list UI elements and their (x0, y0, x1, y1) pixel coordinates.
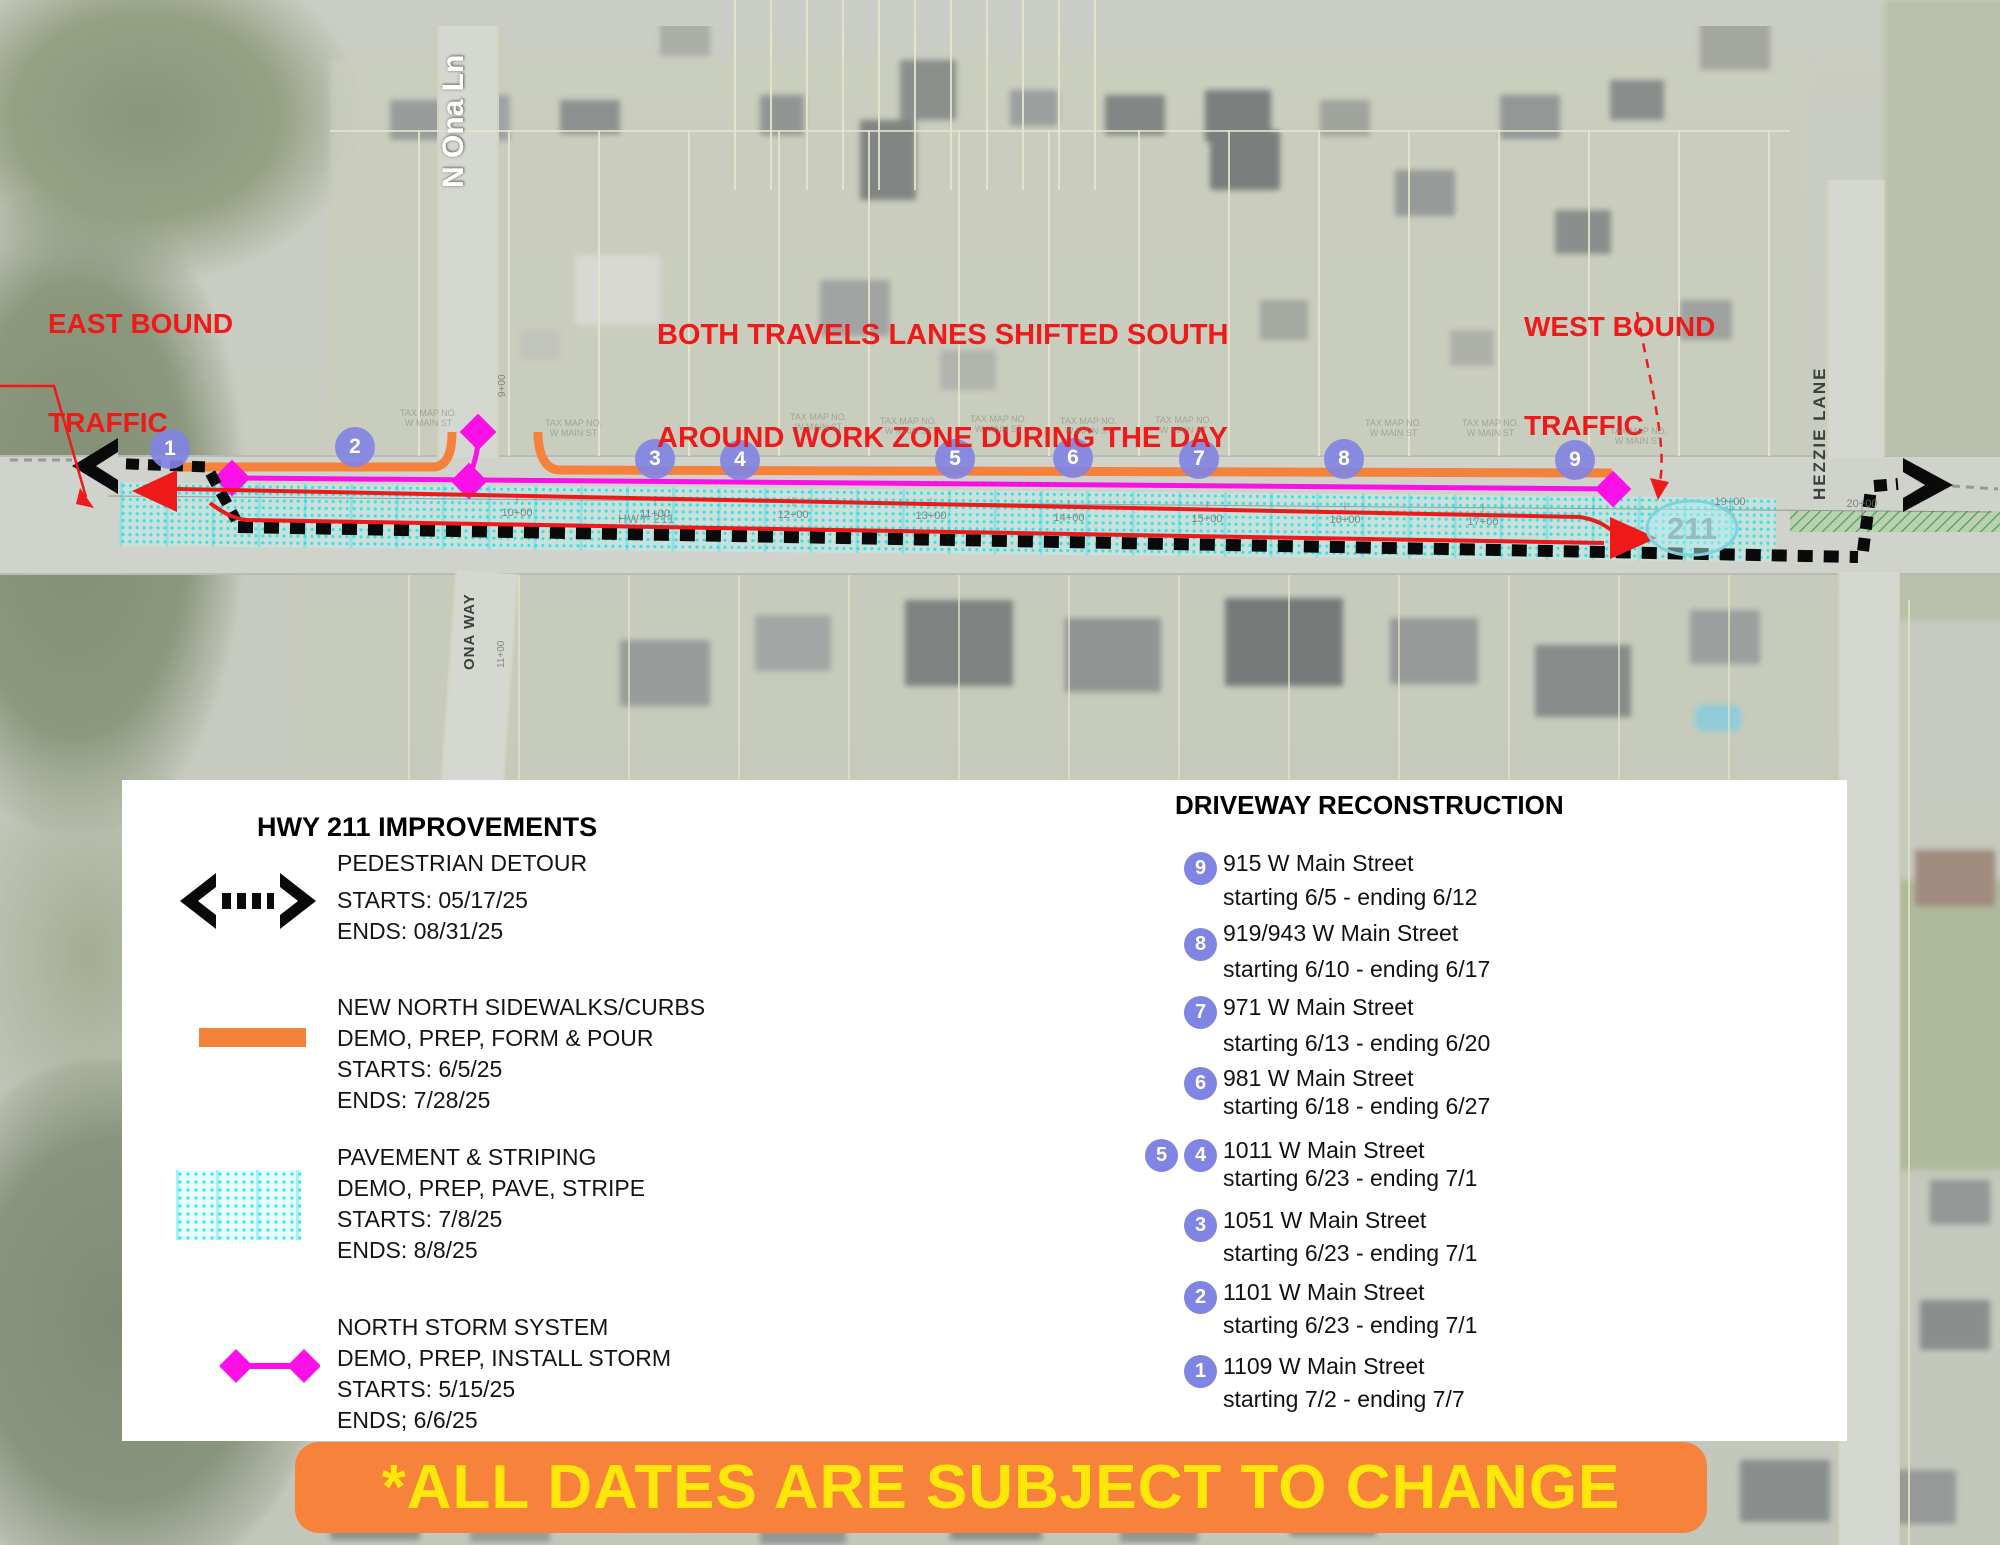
svg-text:19+00: 19+00 (1715, 496, 1746, 508)
pedestrian-detour-east-arrow-icon (1903, 458, 1953, 512)
driveway-badge-2: 2 (1184, 1281, 1217, 1314)
svg-text:20+00: 20+00 (1847, 498, 1878, 510)
tax-map-label: TAX MAP NO.W MAIN ST (400, 408, 457, 428)
legend-item-storm: NORTH STORM SYSTEM DEMO, PREP, INSTALL S… (337, 1312, 671, 1436)
svg-text:10+00: 10+00 (502, 507, 533, 519)
svg-text:16+00: 16+00 (1330, 514, 1361, 526)
tax-map-label: TAX MAP NO.W MAIN ST (545, 418, 602, 438)
storm-legend-icon (220, 1344, 320, 1388)
driveway-dates: starting 6/13 - ending 6/20 (1223, 1030, 1490, 1057)
street-label-hezzie-lane: HEZZIE LANE (1810, 367, 1830, 500)
driveway-address: 981 W Main Street (1223, 1065, 1413, 1092)
driveway-address: 1011 W Main Street (1223, 1137, 1425, 1164)
driveway-address: 919/943 W Main Street (1223, 920, 1458, 947)
dates-disclaimer-banner: *ALL DATES ARE SUBJECT TO CHANGE (295, 1442, 1707, 1533)
driveway-dates: starting 6/5 - ending 6/12 (1223, 884, 1477, 911)
street-label-hwy-211: HWY 211 (618, 512, 675, 526)
side-station-11-00: 11+00 (496, 641, 507, 668)
west-bound-traffic-label: WEST BOUND TRAFFIC (1524, 244, 1715, 508)
driveway-address: 1109 W Main Street (1223, 1353, 1425, 1380)
tax-map-label: TAX MAP NO.W MAIN ST (1462, 418, 1519, 438)
legend-item-pavement: PAVEMENT & STRIPING DEMO, PREP, PAVE, ST… (337, 1142, 645, 1266)
driveway-badge-3: 3 (1184, 1209, 1217, 1242)
tax-map-label: TAX MAP NO.W MAIN ST (1155, 415, 1212, 435)
driveway-dates: starting 7/2 - ending 7/7 (1223, 1386, 1465, 1413)
driveway-dates: starting 6/23 - ending 7/1 (1223, 1312, 1477, 1339)
tax-map-label: TAX MAP NO.W MAIN ST (880, 416, 937, 436)
map-marker-2: 2 (335, 427, 375, 467)
svg-text:17+00: 17+00 (1468, 516, 1499, 528)
sidewalk-legend-swatch (199, 1028, 306, 1047)
side-station-9-00: 9+00 (497, 374, 508, 397)
driveway-badge-6: 6 (1184, 1067, 1217, 1100)
driveway-badge-8: 8 (1184, 928, 1217, 961)
tax-map-label: TAX MAP NO.W MAIN ST (790, 412, 847, 432)
driveway-address: 1101 W Main Street (1223, 1279, 1425, 1306)
driveway-dates: starting 6/10 - ending 6/17 (1223, 956, 1490, 983)
east-bound-traffic-label: EAST BOUND TRAFFIC (48, 241, 233, 505)
tax-map-label: TAX MAP NO.W MAIN ST (1365, 418, 1422, 438)
driveway-badge-5: 5 (1145, 1139, 1178, 1172)
driveway-title: DRIVEWAY RECONSTRUCTION (1175, 790, 1564, 821)
legend-item-pedestrian-detour: PEDESTRIAN DETOUR STARTS: 05/17/25 ENDS:… (337, 848, 587, 947)
driveway-badge-9: 9 (1184, 852, 1217, 885)
pedestrian-detour-legend-icon (178, 872, 318, 930)
flyer-root: 211 10+00 11+00 12+00 13+00 14+00 15+00 … (0, 0, 2000, 1545)
driveway-address: 971 W Main Street (1223, 994, 1413, 1021)
legend-item-sidewalks: NEW NORTH SIDEWALKS/CURBS DEMO, PREP, FO… (337, 992, 705, 1116)
map-marker-8: 8 (1324, 439, 1364, 479)
street-label-ona-way: ONA WAY (461, 593, 478, 670)
driveway-dates: starting 6/23 - ending 7/1 (1223, 1165, 1477, 1192)
dates-disclaimer-text: *ALL DATES ARE SUBJECT TO CHANGE (382, 1452, 1621, 1523)
driveway-badge-1: 1 (1184, 1355, 1217, 1388)
driveway-badge-7: 7 (1184, 996, 1217, 1029)
driveway-dates: starting 6/23 - ending 7/1 (1223, 1240, 1477, 1267)
driveway-address: 915 W Main Street (1223, 850, 1413, 877)
tax-map-label: TAX MAP NO.W MAIN ST (970, 414, 1027, 434)
tax-map-label: TAX MAP NO.W MAIN ST (1610, 426, 1667, 446)
driveway-address: 1051 W Main Street (1223, 1207, 1426, 1234)
pavement-legend-swatch (176, 1170, 301, 1240)
svg-text:211: 211 (1667, 511, 1717, 546)
route-211-bubble: 211 (1647, 501, 1737, 555)
driveway-badge-4: 4 (1184, 1139, 1217, 1172)
legend-title: HWY 211 IMPROVEMENTS (257, 812, 597, 843)
street-label-n-ona-ln: N Ona Ln (437, 55, 471, 188)
grass-median (1790, 511, 2000, 532)
lane-shift-notice: BOTH TRAVELS LANES SHIFTED SOUTH AROUND … (657, 250, 1228, 524)
tax-map-label: TAX MAP NO.W MAIN ST (1060, 416, 1117, 436)
driveway-dates: starting 6/18 - ending 6/27 (1223, 1093, 1490, 1120)
